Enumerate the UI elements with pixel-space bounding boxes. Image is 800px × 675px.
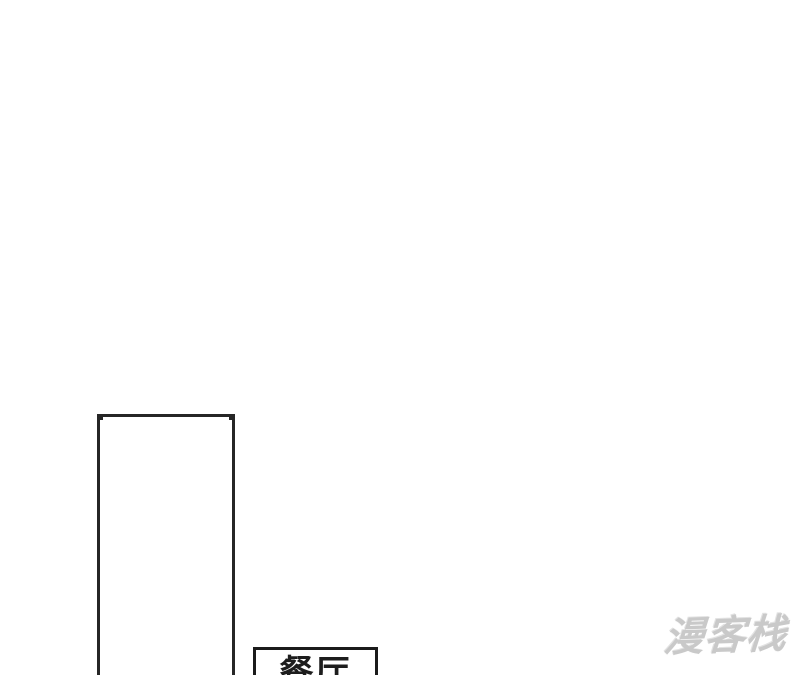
scene-label-text: 餐厅 bbox=[280, 655, 352, 675]
comic-page: 餐厅 漫客栈 bbox=[0, 0, 800, 675]
platform-watermark: 漫客栈 bbox=[662, 612, 800, 661]
comic-panel-outline bbox=[97, 414, 235, 675]
panel-corner-nub-left bbox=[99, 414, 103, 420]
panel-corner-nub-right bbox=[229, 414, 233, 420]
scene-label-box: 餐厅 bbox=[253, 647, 378, 675]
